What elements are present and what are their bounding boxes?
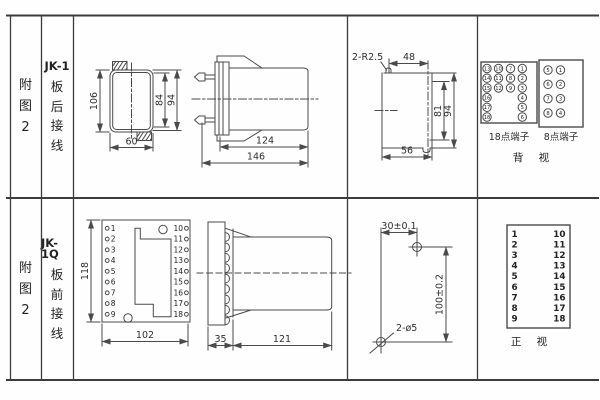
front-view-label: 正 视 <box>511 335 553 348</box>
table-number-right: 10 <box>553 230 565 240</box>
terminal-dot <box>185 226 189 230</box>
table-number-left: 4 <box>512 262 518 272</box>
technical-drawing-page: 附 图 2 JK-1 板 后 接 线 附 图 2 JK-1Q 板 前 接 线 <box>0 0 600 400</box>
plate-dimensions: 118 102 <box>80 220 188 346</box>
terminal-dot <box>185 248 189 252</box>
dim-94: 94 <box>167 94 178 106</box>
terminal-number: 9 <box>509 86 512 92</box>
panel-cutout-view: 48 2-R2.5 81 94 56 <box>352 52 456 160</box>
table-number-right: 17 <box>553 304 565 314</box>
drilling-diagram: 30±0.1 100±0.2 2-ø5 <box>370 221 452 353</box>
jk1-case-side-view: 124 146 <box>192 56 318 167</box>
table-number-right: 13 <box>553 262 565 272</box>
dim-121: 121 <box>273 334 291 345</box>
terminal-number: 8 <box>111 299 116 308</box>
terminal-number: 7 <box>111 288 116 297</box>
terminal-dot <box>105 280 109 284</box>
terminal18-grid: 131415161718101112789123456 <box>483 64 527 121</box>
terminal-number: 12 <box>173 245 183 254</box>
screw-bump <box>226 233 229 242</box>
dim-94: 94 <box>443 105 454 117</box>
terminal-number: 2 <box>559 82 562 88</box>
terminal-dot <box>185 269 189 273</box>
radius-note: 2-R2.5 <box>352 52 383 63</box>
table-number-right: 14 <box>553 272 565 282</box>
table-number-right: 18 <box>553 314 565 324</box>
terminal-dot <box>105 269 109 273</box>
terminal-number: 16 <box>173 288 183 297</box>
screw-bump <box>226 285 229 294</box>
terminal-dot <box>105 312 109 316</box>
terminal18-label: 18点端子 <box>489 131 530 143</box>
cutout-dimensions: 48 2-R2.5 81 94 56 <box>352 52 454 160</box>
terminal-dot <box>185 237 189 241</box>
dim-48: 48 <box>403 52 415 63</box>
terminal-number: 3 <box>521 86 524 92</box>
jk1q-plate-front-view: 123456789101112131415161718 118 102 <box>80 220 190 346</box>
terminal8-grid: 56781234 <box>544 66 565 117</box>
terminal-number: 18 <box>173 310 183 319</box>
table-number-left: 5 <box>512 272 518 282</box>
table-number-left: 9 <box>512 314 518 324</box>
terminal-number: 6 <box>521 115 524 121</box>
table-number-left: 1 <box>512 230 518 240</box>
terminal-number: 15 <box>484 86 491 92</box>
terminal-number: 4 <box>559 111 563 117</box>
front-view-dimensions: 106 60 84 94 <box>89 70 181 151</box>
dim-35: 35 <box>214 334 226 345</box>
terminal-number: 7 <box>509 66 512 72</box>
terminal-dot <box>185 302 189 306</box>
drill-dimensions: 30±0.1 100±0.2 2-ø5 <box>381 221 446 342</box>
terminal-number: 14 <box>173 267 183 276</box>
hole-note: 2-ø5 <box>396 323 417 334</box>
terminal-dot <box>185 291 189 295</box>
terminal-number: 2 <box>111 235 116 244</box>
rear-view-label: 背 视 <box>513 151 555 164</box>
jk1q-side-view: 35 121 <box>197 222 351 350</box>
table-numbers: 123456789101112131415161718 <box>512 230 566 324</box>
screw-bump <box>226 264 229 273</box>
rear-terminal-blocks: 131415161718101112789123456 18点端子 567812… <box>481 60 583 164</box>
dim-56: 56 <box>401 146 413 157</box>
terminal-number: 13 <box>173 256 183 265</box>
front-terminal-table: 123456789101112131415161718 正 视 <box>507 225 570 348</box>
terminal-number: 4 <box>521 96 525 102</box>
dim-84: 84 <box>155 94 166 106</box>
table-number-right: 16 <box>553 293 565 303</box>
terminal-dot <box>185 312 189 316</box>
terminal-bolt-top <box>195 73 216 81</box>
terminal-dot <box>105 237 109 241</box>
screw-bump <box>226 274 229 283</box>
table-number-right: 12 <box>553 251 565 261</box>
terminal-dot <box>105 226 109 230</box>
table-number-right: 11 <box>553 241 565 251</box>
table-number-left: 3 <box>512 251 518 261</box>
dim-30: 30±0.1 <box>381 221 416 232</box>
terminal8-label: 8点端子 <box>544 131 579 143</box>
terminal-number: 14 <box>484 76 491 82</box>
terminal-number: 5 <box>546 68 549 74</box>
terminal-number: 11 <box>173 235 183 244</box>
terminal-number: 8 <box>546 111 549 117</box>
terminal-number: 1 <box>111 224 116 233</box>
terminal-number: 17 <box>484 105 491 111</box>
terminal-number: 9 <box>111 310 116 319</box>
terminal-dot <box>105 248 109 252</box>
jk1-case-front-view: 106 60 84 94 <box>89 62 181 152</box>
dim-118: 118 <box>80 262 91 280</box>
terminal-number: 4 <box>111 256 116 265</box>
terminal-number: 7 <box>546 97 549 103</box>
mounting-stud-bottom <box>137 132 152 141</box>
mounting-hole-top <box>159 225 167 233</box>
terminal-dot <box>105 291 109 295</box>
table-number-left: 2 <box>512 241 518 251</box>
terminal-number: 15 <box>173 278 183 287</box>
terminal-number: 1 <box>559 68 562 74</box>
terminal-number: 8 <box>509 76 512 82</box>
stepped-cutout <box>135 228 171 316</box>
terminal-number: 3 <box>559 97 562 103</box>
mounting-hole-bottom <box>124 314 132 322</box>
terminal-number: 10 <box>173 224 183 233</box>
table-number-left: 7 <box>512 293 518 303</box>
table-number-left: 6 <box>512 283 518 293</box>
dim-100: 100±0.2 <box>435 274 446 315</box>
table-number-right: 15 <box>553 283 565 293</box>
terminal-number: 3 <box>111 245 116 254</box>
terminal-dot <box>105 302 109 306</box>
terminal-number: 16 <box>484 96 491 102</box>
terminal-dot <box>105 259 109 263</box>
screw-bump <box>226 254 229 263</box>
terminal-number: 13 <box>484 66 491 72</box>
mounting-stud-top <box>113 62 128 71</box>
terminal-number: 11 <box>495 76 502 82</box>
terminal-screw-profile <box>226 233 229 325</box>
bottom-slot <box>423 148 430 153</box>
dim-146: 146 <box>247 152 265 163</box>
dim-60: 60 <box>125 137 137 148</box>
terminal-number: 5 <box>111 267 116 276</box>
terminal-number: 5 <box>521 105 524 111</box>
terminal-number: 12 <box>495 86 502 92</box>
screw-bump <box>226 243 229 252</box>
screw-bump <box>226 295 229 304</box>
hole-leader <box>370 333 394 353</box>
dim-106: 106 <box>89 92 100 110</box>
terminal-dot <box>185 280 189 284</box>
drawing-sheet: 106 60 84 94 <box>0 0 600 400</box>
terminal-dot <box>185 259 189 263</box>
terminal-bolt-bottom <box>195 116 216 124</box>
terminal-number: 6 <box>111 278 116 287</box>
terminal-number: 6 <box>546 82 549 88</box>
terminal-number: 10 <box>495 66 502 72</box>
terminal-number: 2 <box>521 76 524 82</box>
dim-102: 102 <box>136 330 154 341</box>
terminal-number: 17 <box>173 299 183 308</box>
terminal-number: 18 <box>484 115 491 121</box>
dim-124: 124 <box>256 136 274 147</box>
table-number-left: 8 <box>512 304 518 314</box>
screw-bump <box>226 306 229 315</box>
terminal-number: 1 <box>521 66 524 72</box>
